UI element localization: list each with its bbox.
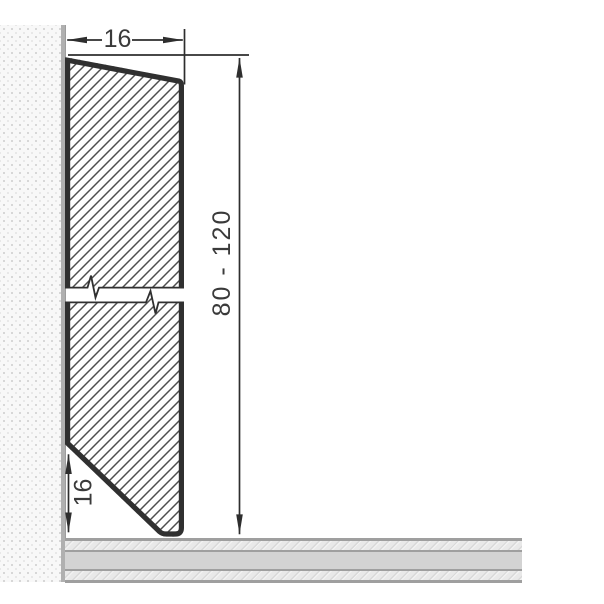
skirting-upper-section-hatch <box>65 57 184 298</box>
width-arrowhead-right <box>163 37 183 44</box>
height-arrowhead-top <box>236 58 243 78</box>
chamfer-dimension-label: 16 <box>71 458 98 528</box>
width-arrowhead-left <box>67 37 87 44</box>
diagram-canvas: 16 80 - 120 16 <box>0 0 604 604</box>
width-dimension-label: 16 <box>87 26 148 55</box>
height-dimension-label: 80 - 120 <box>209 197 236 328</box>
height-arrowhead-bottom <box>236 514 243 534</box>
